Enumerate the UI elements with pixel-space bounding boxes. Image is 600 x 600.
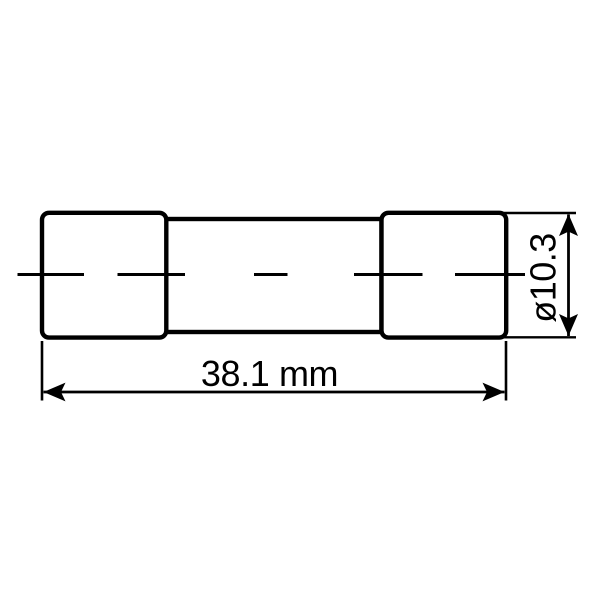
svg-text:ø10.3: ø10.3 xyxy=(523,233,564,323)
svg-text:38.1 mm: 38.1 mm xyxy=(201,353,338,394)
